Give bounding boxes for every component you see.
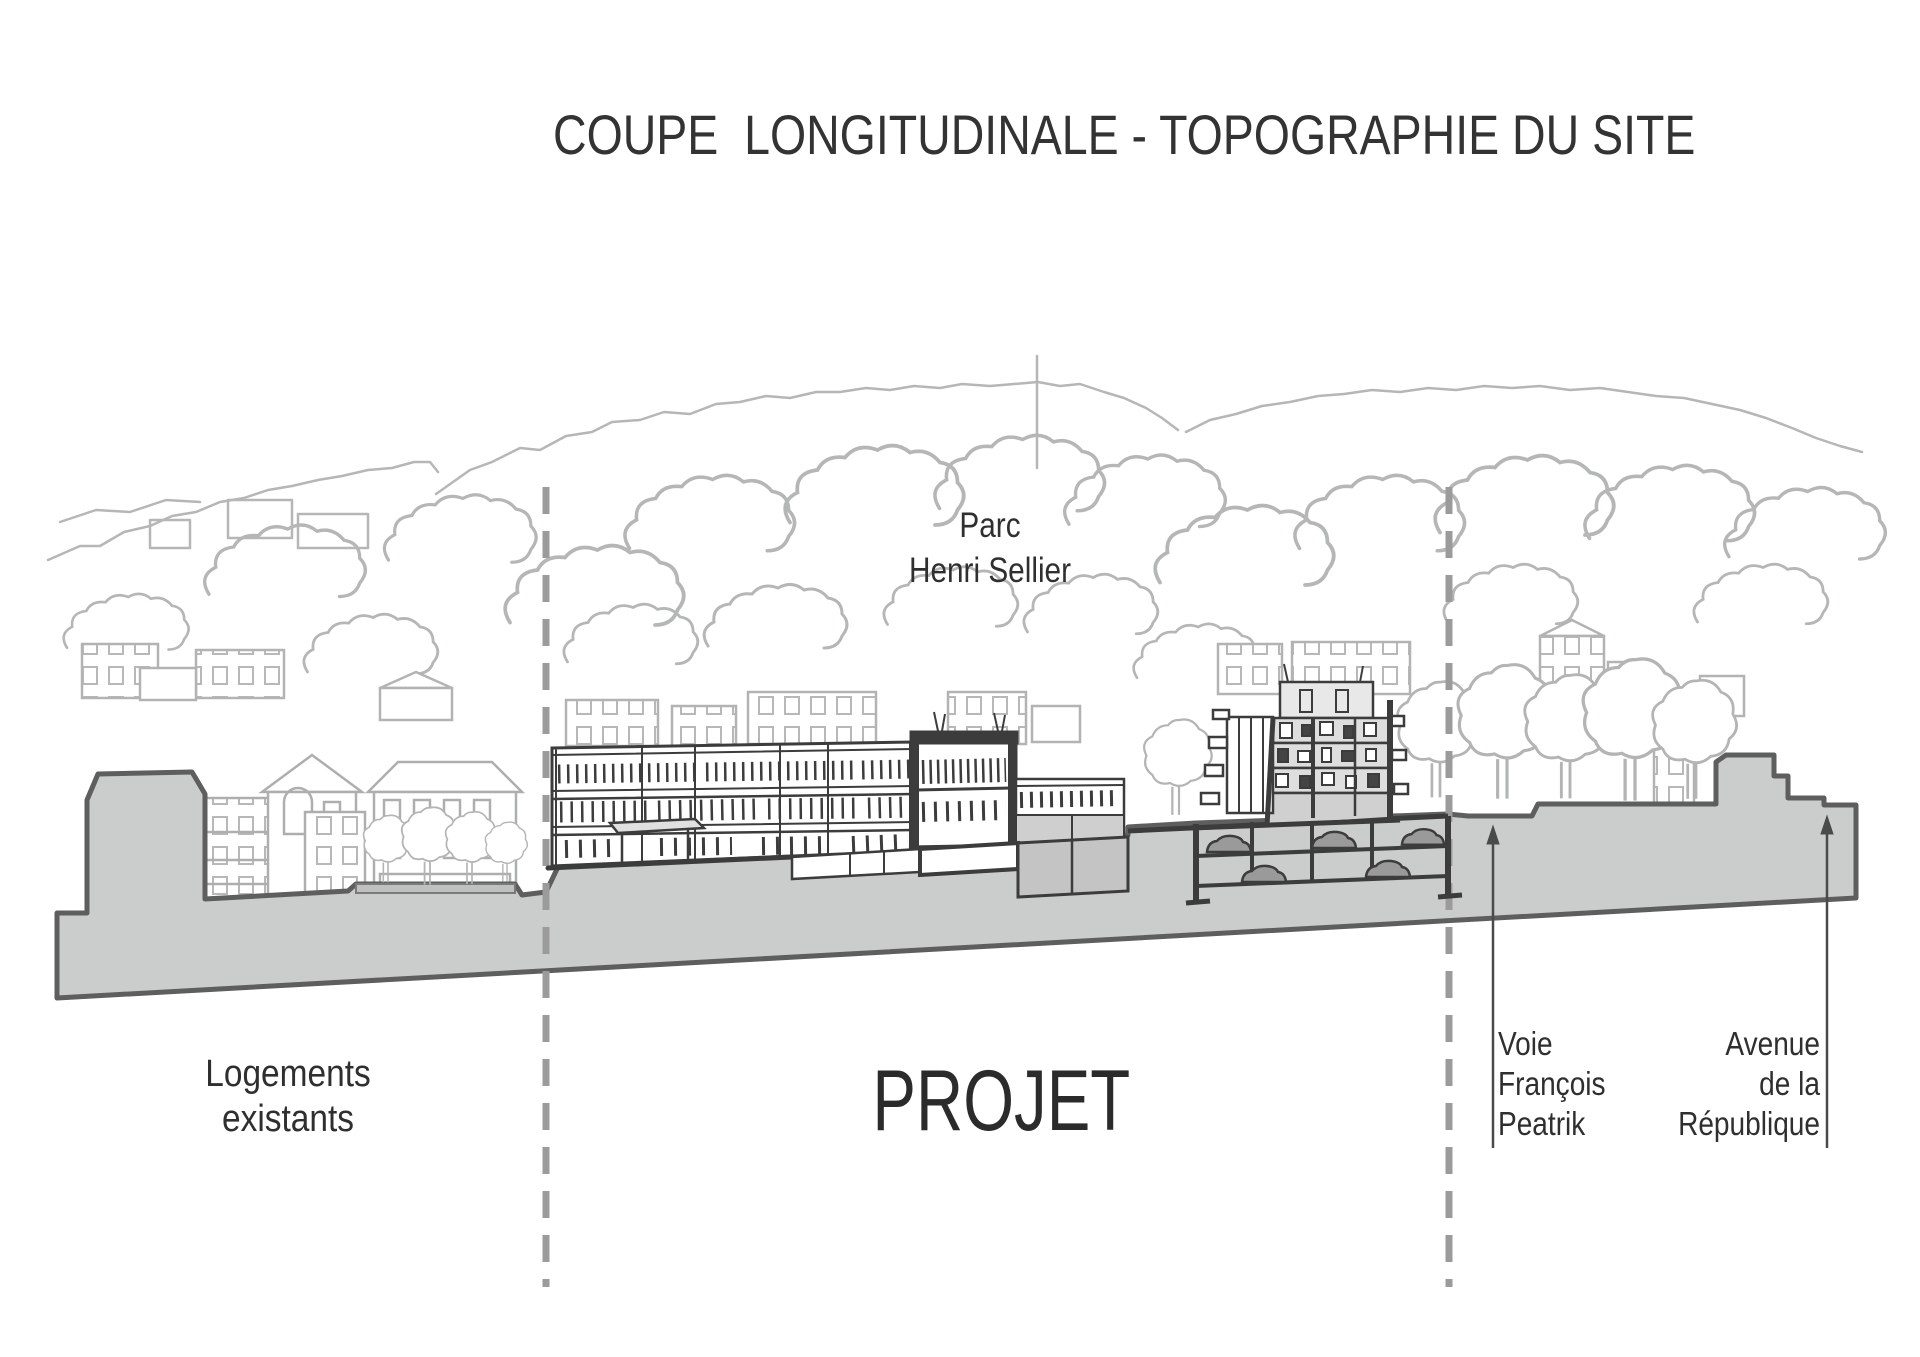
drawing-title: COUPE LONGITUDINALE - TOPOGRAPHIE DU SIT… <box>553 102 1383 167</box>
project-building-right-wing <box>1016 779 1124 843</box>
label-logements-existants: Logements existants <box>174 1052 403 1142</box>
sidewalk-strip <box>356 884 515 893</box>
project-building-long <box>548 742 914 868</box>
label-parc-henri-sellier: Parc Henri Sellier <box>888 503 1092 593</box>
project-building-head <box>910 712 1018 849</box>
section-drawing <box>0 0 1920 1357</box>
label-avenue-republique: Avenue de la République <box>1659 1024 1821 1144</box>
label-projet: PROJET <box>872 1058 1115 1144</box>
label-voie-francois-peatrik: Voie François Peatrik <box>1498 1024 1606 1144</box>
section-drawing-page: COUPE LONGITUDINALE - TOPOGRAPHIE DU SIT… <box>0 0 1920 1357</box>
